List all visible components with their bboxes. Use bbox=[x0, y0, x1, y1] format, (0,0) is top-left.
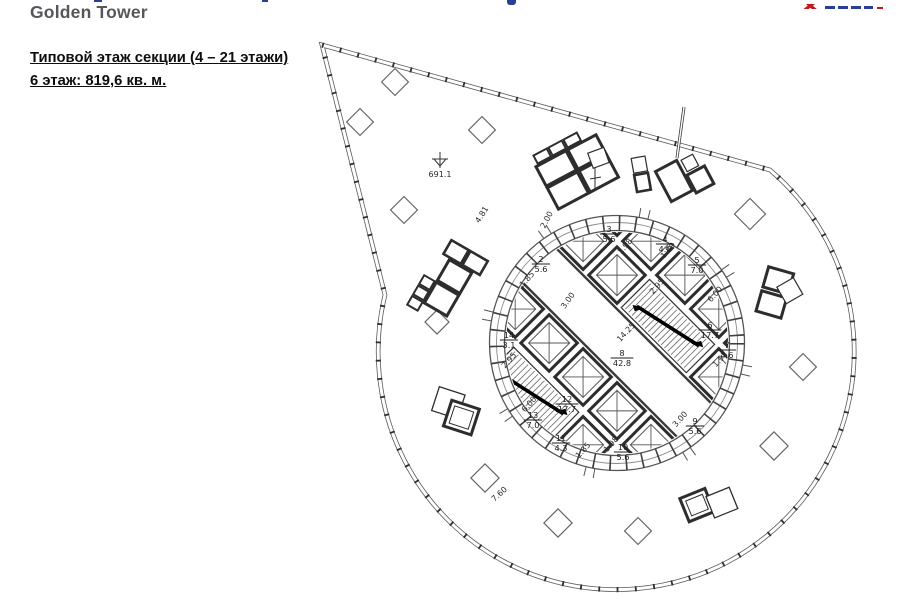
ring-stub bbox=[584, 466, 586, 476]
shaft-pair-bottom-left bbox=[428, 387, 482, 435]
ring-stub bbox=[648, 210, 650, 220]
shaft-cluster-right bbox=[756, 267, 803, 318]
dimension-label: 4.81 bbox=[473, 205, 490, 225]
svg-text:5.6: 5.6 bbox=[616, 452, 629, 462]
ring-stub bbox=[682, 452, 687, 461]
ring-stub bbox=[593, 468, 595, 478]
room-label: 842.8 bbox=[611, 348, 634, 368]
ring-stub bbox=[484, 310, 494, 312]
column-diamond bbox=[382, 69, 409, 96]
svg-text:9: 9 bbox=[692, 416, 697, 426]
ring-stub bbox=[721, 264, 729, 270]
shaft-cluster-top bbox=[531, 125, 619, 209]
column-diamond bbox=[347, 109, 374, 136]
floor-plan-drawing: 25.635.644.057.0617.774.6842.895.6105.61… bbox=[0, 0, 900, 604]
svg-text:5.6: 5.6 bbox=[534, 264, 547, 274]
svg-text:8: 8 bbox=[619, 348, 624, 358]
column-diamond bbox=[471, 464, 499, 492]
dimension-label: 14.25 bbox=[615, 321, 637, 344]
svg-text:4.3: 4.3 bbox=[554, 443, 567, 453]
svg-text:4: 4 bbox=[662, 234, 667, 244]
ring-stub bbox=[482, 319, 492, 321]
svg-text:6: 6 bbox=[707, 320, 712, 330]
svg-text:5: 5 bbox=[694, 255, 699, 265]
column-diamond bbox=[391, 197, 418, 224]
svg-text:7: 7 bbox=[724, 340, 729, 350]
room-label: 95.6 bbox=[686, 416, 704, 436]
svg-text:10: 10 bbox=[618, 442, 628, 452]
svg-text:3.1: 3.1 bbox=[502, 340, 515, 350]
ring-stub bbox=[505, 416, 513, 422]
svg-text:7.0: 7.0 bbox=[690, 265, 703, 275]
column-diamond bbox=[734, 198, 765, 229]
svg-text:3: 3 bbox=[606, 224, 611, 234]
svg-text:5.6: 5.6 bbox=[602, 234, 615, 244]
level-mark-symbol bbox=[432, 152, 448, 168]
ring-stub bbox=[639, 208, 641, 218]
room-label: 35.6 bbox=[600, 224, 618, 244]
shaft-cluster-top-right bbox=[631, 107, 714, 205]
ring-stub bbox=[690, 447, 696, 455]
ring-stub bbox=[726, 272, 735, 277]
room-label: 25.6 bbox=[532, 254, 550, 274]
svg-text:42.8: 42.8 bbox=[613, 358, 631, 368]
svg-text:7.0: 7.0 bbox=[526, 420, 539, 430]
dimension-label: 2.00 bbox=[539, 210, 555, 230]
column-diamond bbox=[625, 518, 652, 545]
shaft-pair-bottom-right bbox=[680, 480, 738, 527]
column-diamond bbox=[469, 117, 496, 144]
svg-text:13: 13 bbox=[528, 410, 538, 420]
ring-stub bbox=[538, 231, 544, 239]
svg-text:2: 2 bbox=[538, 254, 543, 264]
ring-stub bbox=[742, 365, 752, 367]
svg-text:17.7: 17.7 bbox=[701, 330, 719, 340]
column-diamond bbox=[544, 509, 572, 537]
ring-stub bbox=[500, 408, 509, 413]
column-diamond bbox=[790, 354, 817, 381]
svg-text:5.6: 5.6 bbox=[688, 426, 701, 436]
svg-text:11: 11 bbox=[556, 433, 566, 443]
svg-text:17.7: 17.7 bbox=[558, 404, 576, 414]
svg-text:14: 14 bbox=[504, 330, 514, 340]
dimension-label: 7.60 bbox=[490, 485, 509, 504]
level-mark-text: 691.1 bbox=[429, 170, 452, 179]
brochure-page: Golden Tower Типовой этаж секции (4 – 21… bbox=[0, 0, 900, 604]
column-diamond bbox=[760, 432, 788, 460]
ring-stub bbox=[740, 374, 750, 376]
svg-text:12: 12 bbox=[562, 394, 572, 404]
shaft-cluster-left bbox=[407, 237, 488, 329]
dimension-label: 3.00 bbox=[559, 291, 577, 311]
